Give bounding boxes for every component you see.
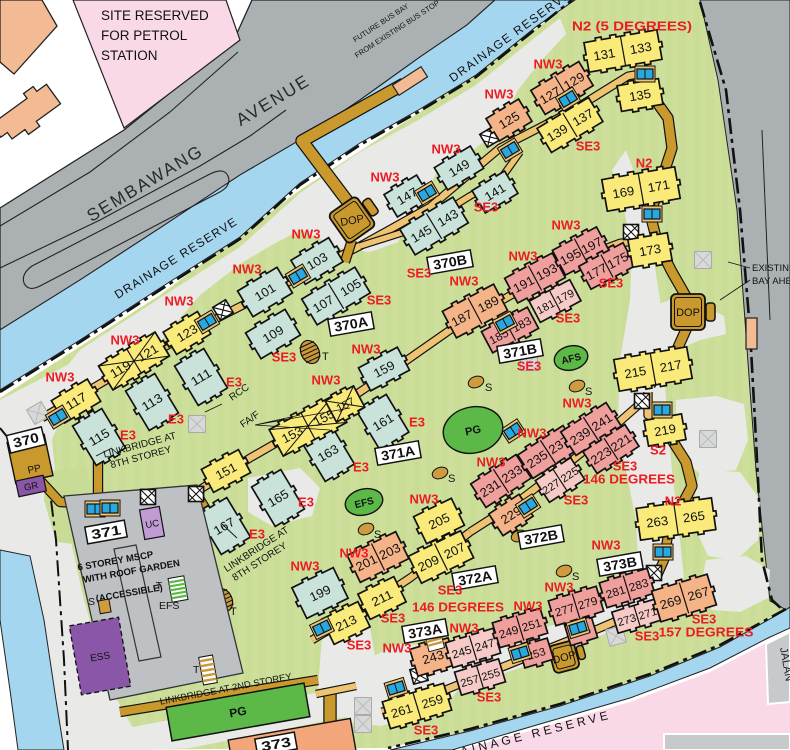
svg-text:SE3: SE3 (564, 493, 589, 508)
svg-text:SITE RESERVED: SITE RESERVED (101, 8, 209, 23)
svg-text:S: S (485, 382, 492, 394)
svg-text:NW3: NW3 (383, 641, 412, 656)
svg-text:NW3: NW3 (534, 57, 563, 72)
svg-text:SE3: SE3 (635, 629, 660, 644)
svg-text:T: T (230, 606, 237, 618)
svg-text:NW3: NW3 (46, 370, 75, 385)
svg-text:NW3: NW3 (552, 218, 581, 233)
svg-text:S: S (88, 596, 95, 608)
svg-text:SE3: SE3 (599, 276, 624, 291)
svg-text:NW3: NW3 (450, 274, 479, 289)
svg-text:146 DEGREES: 146 DEGREES (412, 600, 504, 615)
svg-text:NW3: NW3 (291, 559, 320, 574)
svg-text:SE3: SE3 (272, 350, 297, 365)
svg-text:STATION: STATION (101, 48, 158, 63)
svg-text:S: S (448, 473, 455, 485)
svg-text:SE3: SE3 (438, 583, 463, 598)
svg-text:157 DEGREES: 157 DEGREES (659, 625, 754, 640)
svg-text:FOR PETROL: FOR PETROL (101, 28, 188, 43)
svg-text:NW3: NW3 (450, 621, 479, 636)
svg-text:SE3: SE3 (407, 266, 432, 281)
svg-text:NW3: NW3 (165, 294, 194, 309)
svg-text:E3: E3 (120, 428, 136, 443)
svg-text:SE3: SE3 (477, 690, 502, 705)
svg-text:T: T (322, 351, 329, 363)
svg-text:SE3: SE3 (576, 139, 601, 154)
svg-text:T: T (193, 664, 200, 676)
svg-text:NW3: NW3 (592, 538, 621, 553)
svg-text:NW3: NW3 (514, 599, 543, 614)
svg-text:NW3: NW3 (545, 580, 574, 595)
svg-text:NW3: NW3 (432, 142, 461, 157)
svg-text:N2: N2 (636, 156, 653, 171)
svg-text:PG: PG (228, 704, 248, 721)
svg-text:SE3: SE3 (414, 723, 439, 738)
svg-text:NW3: NW3 (410, 492, 439, 507)
svg-text:SE3: SE3 (517, 359, 542, 374)
svg-text:NW3: NW3 (312, 373, 341, 388)
svg-text:NW3: NW3 (509, 249, 538, 264)
svg-text:SE3: SE3 (474, 200, 499, 215)
svg-text:146 DEGREES: 146 DEGREES (583, 472, 675, 487)
svg-text:E3: E3 (226, 375, 242, 390)
svg-text:NW3: NW3 (292, 227, 321, 242)
svg-text:NW3: NW3 (233, 262, 262, 277)
svg-text:NW3: NW3 (518, 426, 547, 441)
svg-text:E3: E3 (409, 415, 425, 430)
svg-text:BAY AHEAD: BAY AHEAD (752, 276, 790, 287)
svg-text:NW3: NW3 (352, 342, 381, 357)
svg-text:NW3: NW3 (477, 455, 506, 470)
svg-text:NW3: NW3 (111, 333, 140, 348)
svg-text:S: S (374, 529, 381, 541)
svg-text:E3: E3 (353, 460, 369, 475)
svg-text:SE3: SE3 (367, 293, 392, 308)
svg-text:NW3: NW3 (563, 396, 592, 411)
svg-text:E3: E3 (249, 527, 265, 542)
svg-text:NW3: NW3 (485, 87, 514, 102)
svg-text:DOP: DOP (676, 307, 700, 319)
svg-text:EFS: EFS (159, 600, 179, 612)
svg-text:SE3: SE3 (381, 611, 406, 626)
svg-text:S2: S2 (650, 443, 666, 458)
svg-text:SE3: SE3 (556, 311, 581, 326)
svg-text:N2: N2 (665, 494, 682, 509)
svg-text:E3: E3 (168, 412, 184, 427)
svg-text:SE3: SE3 (347, 638, 372, 653)
svg-text:EXISTING: EXISTING (752, 263, 790, 274)
svg-text:NW3: NW3 (371, 170, 400, 185)
svg-text:N2 (5 DEGREES): N2 (5 DEGREES) (572, 19, 692, 34)
svg-text:E3: E3 (298, 495, 314, 510)
svg-text:NW3: NW3 (340, 546, 369, 561)
svg-text:T: T (156, 580, 163, 592)
